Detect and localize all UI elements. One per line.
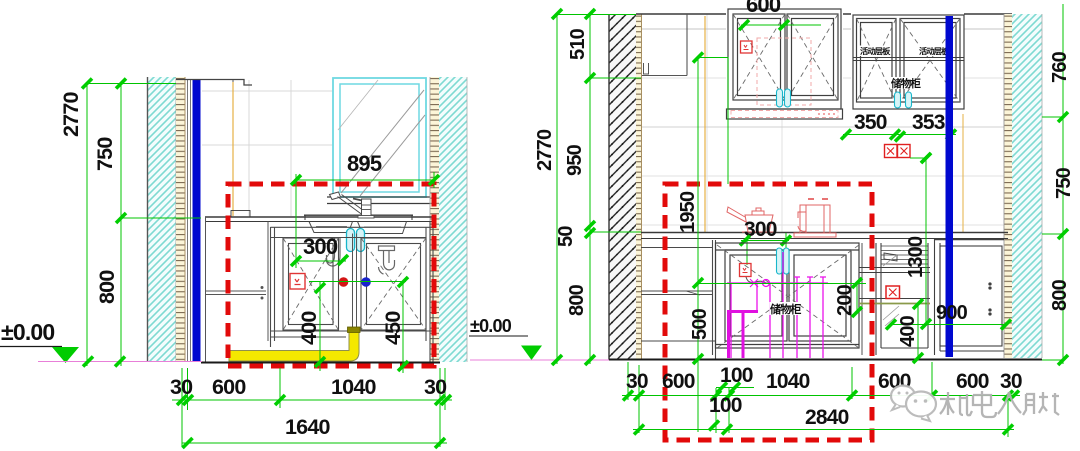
svg-text:1640: 1640: [285, 415, 330, 439]
svg-text:1040: 1040: [331, 375, 376, 399]
svg-text:30: 30: [424, 375, 447, 399]
svg-text:30: 30: [626, 370, 648, 393]
svg-text:活动层板: 活动层板: [919, 46, 950, 56]
svg-text:600: 600: [746, 0, 781, 17]
svg-text:1040: 1040: [766, 370, 810, 393]
svg-text:800: 800: [95, 270, 119, 304]
svg-text:750: 750: [1053, 167, 1075, 199]
svg-text:350: 350: [854, 111, 887, 134]
svg-text:600: 600: [662, 370, 695, 393]
svg-text:储物柜: 储物柜: [891, 77, 921, 90]
svg-text:30: 30: [1000, 370, 1022, 393]
svg-text:±0.00: ±0.00: [470, 316, 512, 336]
svg-text:2840: 2840: [805, 406, 849, 429]
svg-text:800: 800: [1049, 279, 1071, 311]
svg-text:760: 760: [1049, 51, 1071, 83]
svg-text:50: 50: [555, 226, 577, 247]
svg-text:2770: 2770: [534, 129, 556, 171]
svg-text:2770: 2770: [59, 92, 83, 137]
svg-text:400: 400: [297, 311, 321, 345]
svg-text:900: 900: [936, 302, 968, 324]
svg-text:950: 950: [564, 144, 586, 176]
svg-text:储物柜: 储物柜: [770, 302, 801, 316]
svg-text:353: 353: [912, 111, 945, 134]
svg-text:800: 800: [566, 284, 588, 316]
svg-text:1300: 1300: [905, 236, 927, 278]
svg-text:895: 895: [347, 151, 382, 176]
svg-text:450: 450: [381, 311, 405, 345]
svg-text:500: 500: [689, 308, 711, 340]
svg-text:100: 100: [720, 364, 753, 387]
svg-text:400: 400: [897, 315, 919, 347]
svg-text:活动层板: 活动层板: [860, 46, 891, 56]
svg-text:1950: 1950: [677, 191, 699, 233]
svg-text:30: 30: [170, 375, 193, 399]
svg-text:300: 300: [303, 234, 338, 259]
svg-text:510: 510: [567, 28, 589, 60]
svg-text:200: 200: [834, 284, 856, 316]
svg-text:600: 600: [956, 370, 989, 393]
svg-text:±0.00: ±0.00: [1, 319, 54, 345]
svg-text:100: 100: [709, 394, 742, 417]
svg-text:750: 750: [93, 137, 117, 171]
svg-text:600: 600: [212, 375, 246, 399]
